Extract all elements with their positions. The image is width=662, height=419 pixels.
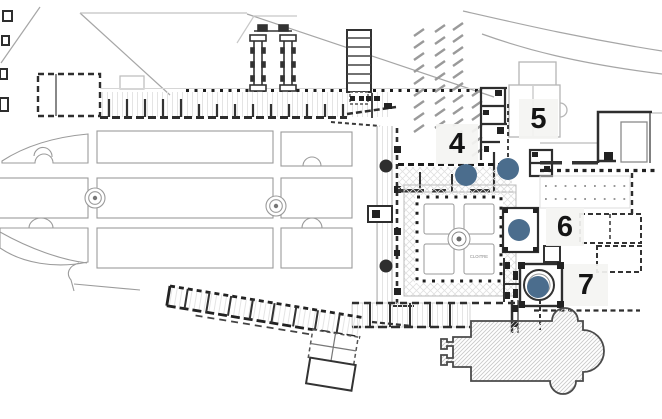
plan-stage: CLOITRE [0, 0, 662, 419]
cloister: CLOITRE [404, 185, 516, 296]
southwest-wing [158, 286, 363, 391]
marker-number-5: 5 [519, 99, 558, 139]
cloister-label: CLOITRE [470, 254, 488, 259]
marker-dot-4 [455, 164, 477, 186]
marker-dot-6 [508, 219, 530, 241]
marker-number-6: 6 [546, 208, 584, 246]
garden-parterres [0, 131, 352, 291]
ladder-building [347, 30, 371, 104]
right-buildings [580, 112, 662, 272]
marker-dot-7 [527, 276, 549, 298]
marker-dot-5 [497, 158, 519, 180]
pavilion [250, 25, 296, 91]
marker-number-4: 4 [436, 124, 478, 164]
marker-number-7: 7 [564, 264, 608, 306]
